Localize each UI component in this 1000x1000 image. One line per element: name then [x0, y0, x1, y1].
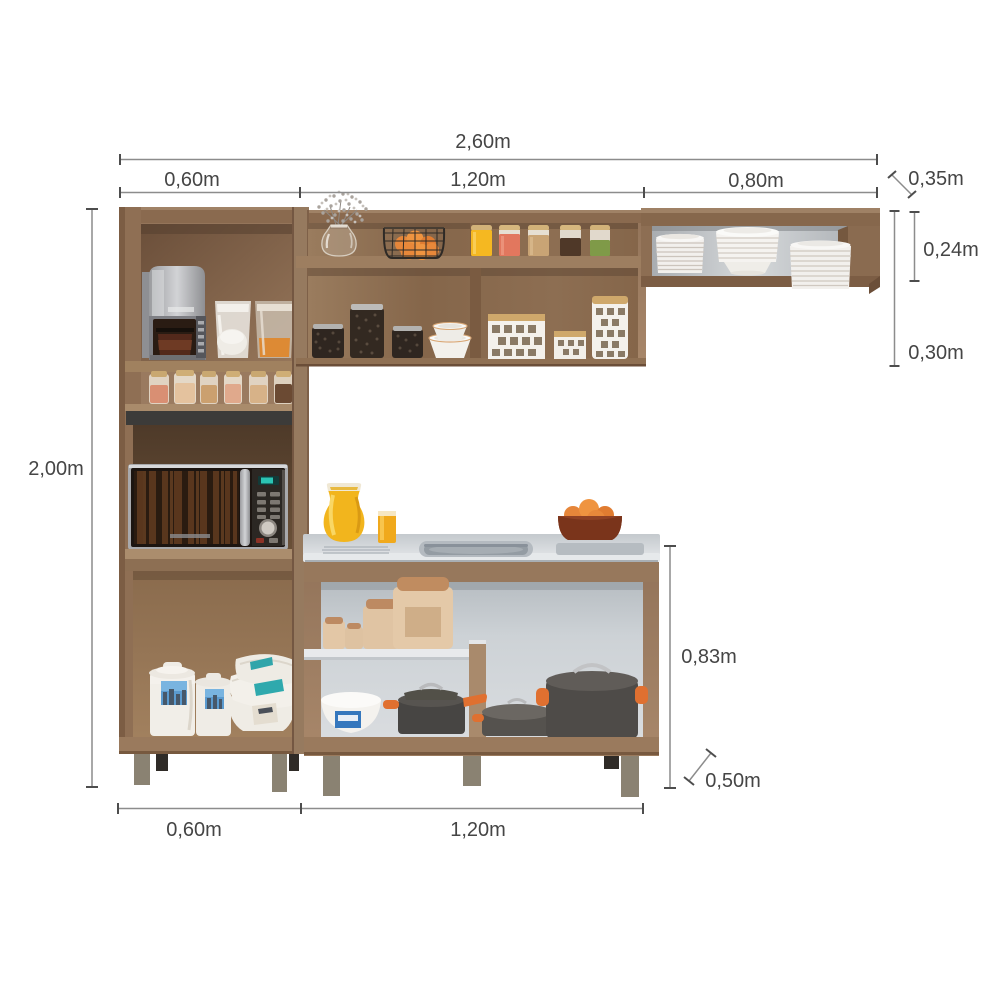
svg-text:1,20m: 1,20m	[450, 169, 506, 191]
svg-text:0,35m: 0,35m	[908, 168, 964, 190]
svg-text:0,60m: 0,60m	[166, 819, 222, 841]
svg-text:0,30m: 0,30m	[908, 342, 964, 364]
svg-text:2,00m: 2,00m	[28, 458, 84, 480]
svg-text:2,60m: 2,60m	[455, 131, 511, 153]
svg-text:0,83m: 0,83m	[681, 646, 737, 668]
svg-text:0,60m: 0,60m	[164, 169, 220, 191]
svg-text:1,20m: 1,20m	[450, 819, 506, 841]
svg-text:0,24m: 0,24m	[923, 239, 979, 261]
svg-text:0,50m: 0,50m	[705, 770, 761, 792]
svg-text:0,80m: 0,80m	[728, 170, 784, 192]
